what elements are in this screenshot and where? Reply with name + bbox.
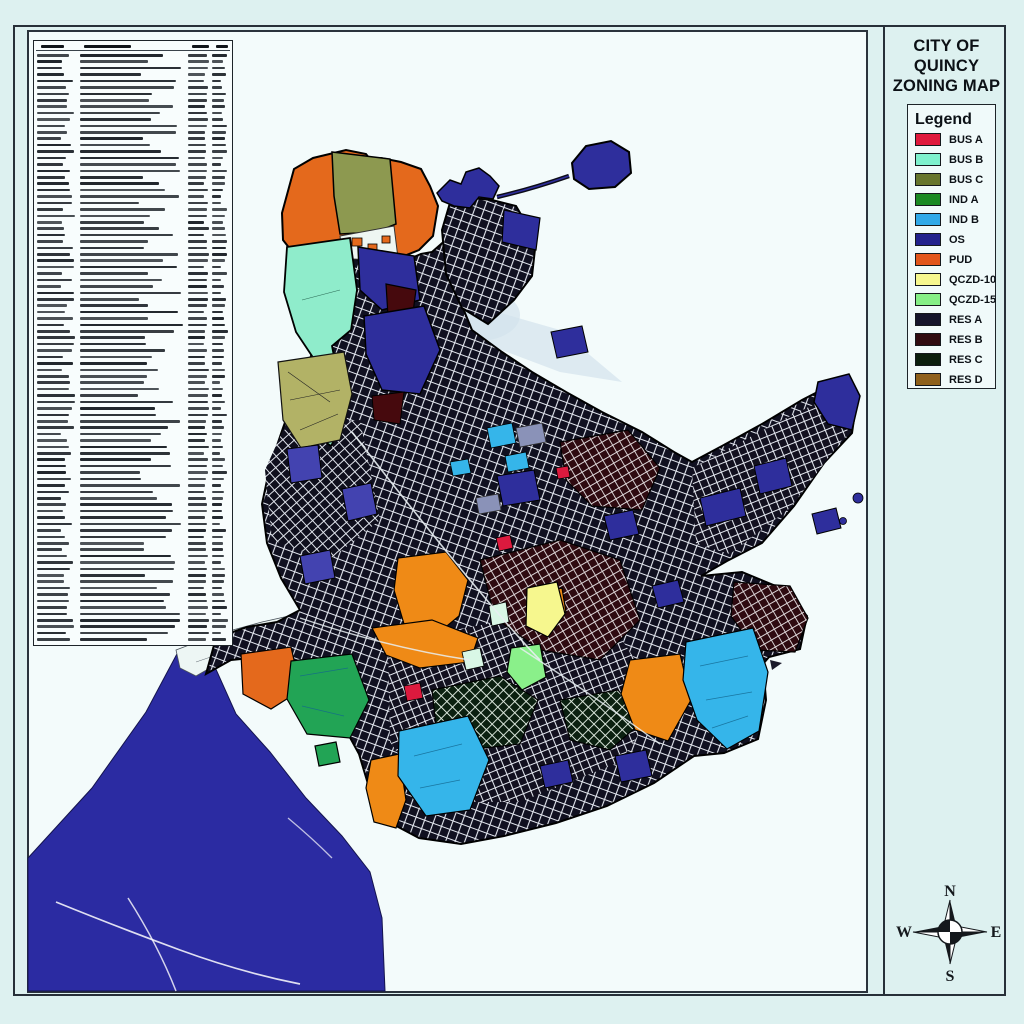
table-row-cell xyxy=(37,144,71,147)
table-row-cell xyxy=(37,343,74,346)
table-row-cell xyxy=(37,452,71,455)
table-row-cell xyxy=(80,471,140,474)
table-row-cell xyxy=(212,80,221,83)
table-row-cell xyxy=(188,266,204,269)
table-row-cell xyxy=(188,439,205,442)
table-row-cell xyxy=(188,73,205,76)
table-row-cell xyxy=(188,523,207,526)
table-row-cell xyxy=(37,73,64,76)
table-row-cell xyxy=(80,93,152,96)
amendments-table xyxy=(33,40,233,646)
table-row-cell xyxy=(188,99,207,102)
table-row-cell xyxy=(37,67,62,70)
table-row-cell xyxy=(80,253,178,256)
table-row-cell xyxy=(212,587,222,590)
table-row-cell xyxy=(212,529,226,532)
legend-item-label: PUD xyxy=(949,254,972,266)
table-row-cell xyxy=(188,510,207,513)
table-row-cell xyxy=(37,131,67,134)
table-row-cell xyxy=(188,503,207,506)
table-row-cell xyxy=(212,516,223,519)
compass-rose: N S E W xyxy=(895,880,1005,990)
table-row-cell xyxy=(188,324,207,327)
table-row-cell xyxy=(37,420,68,423)
table-row-cell xyxy=(37,272,62,275)
table-header-cell xyxy=(192,45,209,48)
table-row-cell xyxy=(212,394,222,397)
table-row-cell xyxy=(80,170,180,173)
table-row-cell xyxy=(212,606,227,609)
table-row-cell xyxy=(80,555,171,558)
table-row-cell xyxy=(80,458,151,461)
compass-east-label: E xyxy=(991,924,1002,941)
legend-title: Legend xyxy=(915,111,972,129)
table-row-cell xyxy=(188,356,205,359)
table-row-cell xyxy=(80,304,148,307)
table-row-cell xyxy=(188,253,209,256)
table-row-cell xyxy=(188,561,205,564)
table-row-cell xyxy=(188,272,208,275)
table-row-cell xyxy=(80,600,164,603)
table-row-cell xyxy=(80,369,158,372)
legend-swatch xyxy=(915,253,941,266)
table-row-cell xyxy=(80,80,176,83)
table-row-cell xyxy=(212,420,222,423)
compass-north-label: N xyxy=(944,883,956,900)
table-row-cell xyxy=(212,99,224,102)
table-row-cell xyxy=(37,125,65,128)
table-row-cell xyxy=(212,324,225,327)
table-row-cell xyxy=(37,638,70,641)
table-row-cell xyxy=(188,215,207,218)
table-row-cell xyxy=(37,80,73,83)
table-row-cell xyxy=(80,420,180,423)
legend-item-label: IND A xyxy=(949,194,979,206)
table-row-cell xyxy=(188,202,208,205)
table-row-cell xyxy=(212,638,226,641)
table-row-cell xyxy=(80,446,167,449)
table-row-cell xyxy=(37,349,72,352)
table-row-cell xyxy=(37,497,61,500)
table-row-cell xyxy=(37,292,74,295)
table-row-cell xyxy=(37,285,61,288)
table-row-cell xyxy=(188,292,208,295)
table-row-cell xyxy=(212,452,220,455)
table-row-cell xyxy=(188,625,207,628)
table-row-cell xyxy=(188,285,207,288)
table-row-cell xyxy=(80,593,170,596)
table-row-cell xyxy=(188,80,204,83)
table-row-cell xyxy=(212,625,226,628)
table-row-cell xyxy=(80,86,174,89)
table-row-cell xyxy=(37,548,62,551)
compass-star xyxy=(913,900,987,964)
table-row-cell xyxy=(80,523,181,526)
table-row-cell xyxy=(80,54,163,57)
table-row-cell xyxy=(188,414,208,417)
table-row-cell xyxy=(188,112,207,115)
table-row-cell xyxy=(212,266,221,269)
table-row-cell xyxy=(37,523,72,526)
table-row-cell xyxy=(80,131,176,134)
table-row-cell xyxy=(37,86,66,89)
legend-swatch xyxy=(915,173,941,186)
table-row-cell xyxy=(80,394,138,397)
table-row-cell xyxy=(37,215,75,218)
table-row-cell xyxy=(188,381,205,384)
table-row-cell xyxy=(80,285,153,288)
map-title: CITY OF QUINCY ZONING MAP xyxy=(885,36,1008,96)
table-row-cell xyxy=(80,414,156,417)
table-row-cell xyxy=(80,247,144,250)
table-row-cell xyxy=(188,478,206,481)
table-row-cell xyxy=(212,311,223,314)
table-row-cell xyxy=(212,369,225,372)
table-row-cell xyxy=(80,195,179,198)
table-row-cell xyxy=(80,208,165,211)
table-row-cell xyxy=(212,292,221,295)
table-row-cell xyxy=(80,330,174,333)
table-row-cell xyxy=(37,157,66,160)
compass-south-label: S xyxy=(946,968,955,985)
table-row-cell xyxy=(80,580,173,583)
table-row-cell xyxy=(37,221,62,224)
table-row-cell xyxy=(212,86,222,89)
table-row-cell xyxy=(37,247,73,250)
table-row-cell xyxy=(212,381,220,384)
table-row-cell xyxy=(212,542,223,545)
legend-item-label: BUS B xyxy=(949,154,983,166)
table-row-cell xyxy=(188,279,207,282)
table-row-cell xyxy=(37,362,73,365)
table-row-cell xyxy=(212,131,226,134)
table-row-cell xyxy=(37,170,70,173)
table-row-cell xyxy=(80,439,151,442)
table-row-cell xyxy=(188,529,206,532)
table-row-cell xyxy=(80,356,152,359)
table-row-cell xyxy=(188,516,205,519)
table-row-cell xyxy=(37,536,65,539)
table-row-cell xyxy=(80,401,173,404)
table-row-cell xyxy=(80,234,173,237)
table-row-cell xyxy=(37,593,68,596)
table-row-cell xyxy=(37,613,67,616)
table-header-cell xyxy=(216,45,228,48)
table-row-cell xyxy=(212,227,225,230)
table-row-cell xyxy=(188,491,204,494)
table-row-cell xyxy=(37,279,72,282)
table-row-cell xyxy=(80,112,160,115)
table-row-cell xyxy=(188,420,206,423)
map-title-line2: ZONING MAP xyxy=(885,76,1008,96)
table-row-cell xyxy=(37,176,65,179)
table-row-cell xyxy=(80,548,144,551)
table-row-cell xyxy=(212,67,225,70)
legend-swatch xyxy=(915,233,941,246)
table-row-cell xyxy=(212,343,223,346)
table-row-cell xyxy=(37,446,69,449)
table-row-cell xyxy=(188,471,208,474)
table-row-cell xyxy=(212,593,224,596)
table-row-cell xyxy=(188,336,205,339)
table-row-cell xyxy=(212,600,225,603)
legend-swatch xyxy=(915,153,941,166)
table-row-cell xyxy=(37,458,65,461)
table-row-cell xyxy=(37,259,74,262)
table-row-cell xyxy=(37,240,63,243)
table-row-cell xyxy=(80,118,151,121)
table-row-cell xyxy=(188,542,206,545)
table-row-cell xyxy=(212,375,225,378)
table-row-cell xyxy=(212,253,227,256)
table-row-cell xyxy=(37,606,67,609)
table-row-cell xyxy=(37,439,67,442)
table-row-cell xyxy=(37,555,67,558)
table-row-cell xyxy=(37,330,70,333)
legend-swatch xyxy=(915,193,941,206)
table-row-cell xyxy=(80,182,159,185)
table-row-cell xyxy=(188,401,208,404)
table-row-cell xyxy=(188,157,205,160)
table-row-cell xyxy=(188,638,206,641)
panel-divider xyxy=(883,25,885,996)
table-row-cell xyxy=(80,503,172,506)
table-row-cell xyxy=(37,561,73,564)
compass-west-label: W xyxy=(896,924,912,941)
table-row-cell xyxy=(212,137,225,140)
legend-item-label: RES C xyxy=(949,354,983,366)
table-row-cell xyxy=(80,561,175,564)
table-row-cell xyxy=(80,362,147,365)
table-row-cell xyxy=(188,54,207,57)
table-row-cell xyxy=(212,189,223,192)
table-row-cell xyxy=(80,510,173,513)
legend-swatch xyxy=(915,353,941,366)
table-row-cell xyxy=(37,137,61,140)
table-row-cell xyxy=(80,99,149,102)
table-header-rule xyxy=(36,50,230,51)
table-row-cell xyxy=(80,381,144,384)
table-row-cell xyxy=(188,125,207,128)
table-row-cell xyxy=(212,247,226,250)
table-row-cell xyxy=(188,388,209,391)
table-row-cell xyxy=(188,465,207,468)
table-row-cell xyxy=(212,439,221,442)
table-row-cell xyxy=(188,600,207,603)
table-row-cell xyxy=(188,150,206,153)
table-row-cell xyxy=(212,561,221,564)
table-row-cell xyxy=(37,394,75,397)
table-row-cell xyxy=(37,401,75,404)
table-row-cell xyxy=(80,619,180,622)
table-row-cell xyxy=(80,336,145,339)
table-row-cell xyxy=(188,574,206,577)
table-row-cell xyxy=(37,369,62,372)
table-row-cell xyxy=(188,343,204,346)
table-row-cell xyxy=(188,555,208,558)
table-row-cell xyxy=(212,503,222,506)
table-row-cell xyxy=(80,375,147,378)
table-row-cell xyxy=(37,202,72,205)
table-row-cell xyxy=(37,484,65,487)
table-row-cell xyxy=(37,529,61,532)
legend-swatch xyxy=(915,273,941,286)
table-row-cell xyxy=(212,613,221,616)
table-row-cell xyxy=(80,157,179,160)
table-row-cell xyxy=(37,388,69,391)
table-row-cell xyxy=(212,548,223,551)
table-row-cell xyxy=(212,208,227,211)
legend-swatch xyxy=(915,133,941,146)
table-row-cell xyxy=(37,253,70,256)
table-row-cell xyxy=(212,144,226,147)
table-row-cell xyxy=(80,215,150,218)
table-row-cell xyxy=(80,67,181,70)
legend-swatch xyxy=(915,293,941,306)
table-row-cell xyxy=(212,285,224,288)
table-row-cell xyxy=(212,632,221,635)
table-row-cell xyxy=(212,234,226,237)
table-row-cell xyxy=(212,568,225,571)
table-row-cell xyxy=(188,118,208,121)
table-row-cell xyxy=(80,311,178,314)
table-row-cell xyxy=(37,433,61,436)
table-row-cell xyxy=(37,54,69,57)
map-title-line1: CITY OF QUINCY xyxy=(885,36,1008,76)
table-row-cell xyxy=(212,176,225,179)
table-row-cell xyxy=(188,362,205,365)
table-row-cell xyxy=(188,369,209,372)
table-row-cell xyxy=(212,125,227,128)
table-row-cell xyxy=(80,105,173,108)
table-row-cell xyxy=(80,60,148,63)
table-row-cell xyxy=(80,298,139,301)
table-row-cell xyxy=(80,202,139,205)
table-row-cell xyxy=(188,446,209,449)
table-row-cell xyxy=(188,60,209,63)
table-row-cell xyxy=(37,336,75,339)
table-row-cell xyxy=(212,157,223,160)
table-row-cell xyxy=(37,491,69,494)
table-row-cell xyxy=(212,388,223,391)
table-row-cell xyxy=(37,478,71,481)
legend-item-label: RES D xyxy=(949,374,983,386)
table-row-cell xyxy=(188,568,207,571)
table-row-cell xyxy=(37,234,65,237)
table-row-cell xyxy=(80,606,166,609)
table-row-cell xyxy=(188,349,207,352)
table-row-cell xyxy=(212,619,228,622)
table-row-cell xyxy=(188,317,207,320)
table-row-cell xyxy=(80,632,168,635)
table-row-cell xyxy=(212,574,225,577)
table-row-cell xyxy=(212,112,222,115)
table-row-cell xyxy=(212,426,224,429)
table-row-cell xyxy=(37,182,69,185)
table-row-cell xyxy=(37,317,73,320)
table-row-cell xyxy=(188,548,206,551)
table-row-cell xyxy=(188,105,205,108)
table-row-cell xyxy=(188,394,208,397)
table-row-cell xyxy=(212,523,220,526)
table-row-cell xyxy=(80,407,155,410)
table-row-cell xyxy=(37,600,69,603)
table-row-cell xyxy=(212,484,221,487)
table-row-cell xyxy=(188,304,207,307)
table-row-cell xyxy=(188,182,204,185)
table-row-cell xyxy=(37,465,66,468)
table-row-cell xyxy=(37,298,74,301)
table-row-cell xyxy=(212,580,224,583)
table-row-cell xyxy=(212,73,226,76)
table-row-cell xyxy=(37,580,64,583)
table-row-cell xyxy=(212,150,227,153)
table-row-cell xyxy=(212,356,224,359)
table-row-cell xyxy=(188,67,208,70)
table-row-cell xyxy=(80,266,177,269)
table-row-cell xyxy=(188,587,204,590)
legend-item-label: RES B xyxy=(949,334,983,346)
table-row-cell xyxy=(188,137,205,140)
table-row-cell xyxy=(188,131,205,134)
table-row-cell xyxy=(188,497,206,500)
table-row-cell xyxy=(37,574,64,577)
table-row-cell xyxy=(37,356,63,359)
table-row-cell xyxy=(188,176,206,179)
table-row-cell xyxy=(80,568,174,571)
legend-item-label: BUS C xyxy=(949,174,983,186)
table-row-cell xyxy=(80,574,145,577)
table-row-cell xyxy=(188,632,209,635)
table-row-cell xyxy=(188,484,205,487)
table-row-cell xyxy=(212,555,224,558)
table-row-cell xyxy=(212,536,223,539)
table-row-cell xyxy=(37,426,74,429)
table-row-cell xyxy=(212,497,223,500)
table-row-cell xyxy=(212,202,221,205)
table-row-cell xyxy=(80,388,159,391)
table-row-cell xyxy=(188,433,207,436)
table-row-cell xyxy=(188,606,208,609)
table-row-cell xyxy=(37,625,74,628)
table-row-cell xyxy=(80,497,157,500)
table-row-cell xyxy=(188,593,206,596)
table-row-cell xyxy=(80,73,141,76)
table-row-cell xyxy=(80,176,143,179)
table-row-cell xyxy=(80,638,147,641)
table-row-cell xyxy=(212,54,227,57)
table-row-cell xyxy=(212,298,226,301)
table-row-cell xyxy=(188,189,208,192)
table-row-cell xyxy=(37,189,70,192)
table-row-cell xyxy=(37,619,73,622)
legend-item-label: QCZD-15 xyxy=(949,294,996,306)
table-row-cell xyxy=(212,446,223,449)
table-row-cell xyxy=(212,240,227,243)
table-row-cell xyxy=(37,632,66,635)
table-row-cell xyxy=(37,381,70,384)
legend-swatch xyxy=(915,333,941,346)
table-row-cell xyxy=(212,458,225,461)
table-header-cell xyxy=(41,45,64,48)
table-row-cell xyxy=(80,137,143,140)
table-row-cell xyxy=(212,407,221,410)
table-row-cell xyxy=(80,491,153,494)
table-row-cell xyxy=(80,349,165,352)
table-row-cell xyxy=(212,401,225,404)
table-row-cell xyxy=(212,60,223,63)
legend-item-label: RES A xyxy=(949,314,982,326)
